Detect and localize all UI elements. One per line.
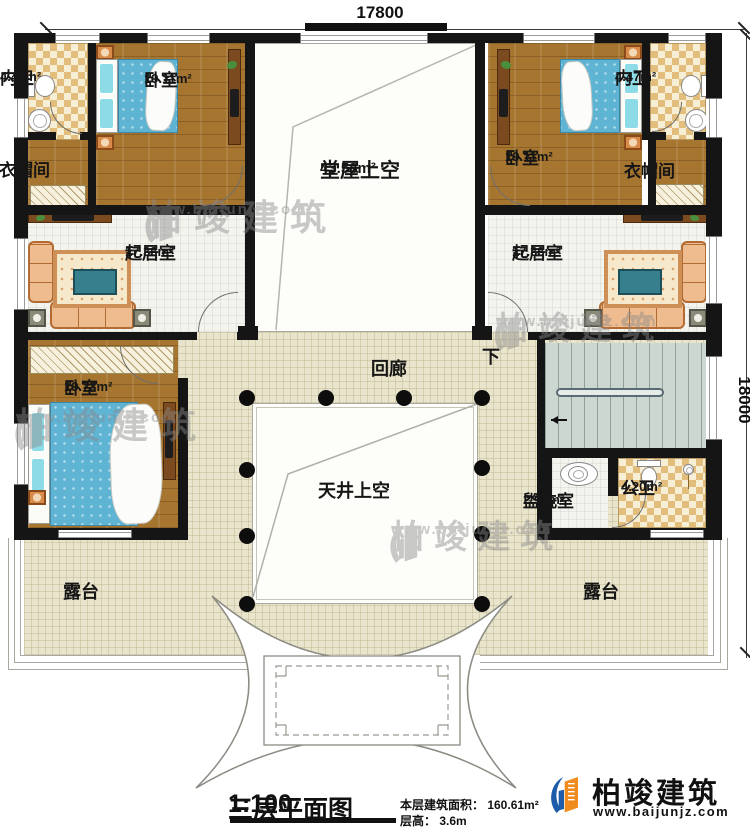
dimension-tick-icon xyxy=(740,647,750,660)
tv-icon xyxy=(230,89,239,117)
wall-segment xyxy=(88,140,96,213)
dimension-width: 17800 xyxy=(340,3,420,23)
floor-height-note: 层高： 3.6m xyxy=(400,812,467,829)
tv-icon xyxy=(52,214,94,221)
column-dot xyxy=(318,390,334,406)
stair-direction-arrow-icon xyxy=(547,416,558,424)
column-dot xyxy=(474,460,490,476)
end-table xyxy=(689,309,707,327)
column-dot xyxy=(396,390,412,406)
wall-segment xyxy=(478,205,722,215)
column-dot xyxy=(474,390,490,406)
wall-segment xyxy=(537,448,722,458)
window xyxy=(706,236,722,304)
plant-icon xyxy=(690,215,699,221)
coffee-table xyxy=(618,269,662,295)
wall-segment xyxy=(178,378,188,528)
dimension-line-thick xyxy=(305,23,447,31)
area-note: 本层建筑面积： 160.61m² xyxy=(400,796,539,813)
nightstand-icon xyxy=(96,135,114,150)
stair-handrail xyxy=(556,388,664,397)
shower-cord xyxy=(688,475,689,489)
window xyxy=(668,33,706,43)
gate-roof xyxy=(170,588,530,800)
wall-segment xyxy=(475,43,485,332)
dimension-height: 18000 xyxy=(734,360,750,440)
wall-segment xyxy=(14,332,197,340)
pillow-icon xyxy=(99,63,114,94)
column-dot xyxy=(474,596,490,612)
sofa xyxy=(681,241,707,303)
company-logo-icon xyxy=(546,770,586,820)
dimension-line xyxy=(746,33,747,658)
hall-roofline xyxy=(252,43,478,332)
sink-icon xyxy=(28,109,51,132)
wall-segment xyxy=(80,132,96,140)
window xyxy=(14,238,28,310)
nightstand-icon xyxy=(28,490,46,505)
company-logo: 柏竣建筑 www.baijunjz.com xyxy=(546,768,746,828)
window xyxy=(706,356,722,440)
toilet-icon xyxy=(681,75,701,97)
sink-icon xyxy=(685,109,708,132)
end-table xyxy=(28,309,46,327)
column-dot xyxy=(239,596,255,612)
wall-segment xyxy=(650,132,666,140)
wall-segment xyxy=(245,43,255,332)
window xyxy=(14,98,28,138)
nightstand-icon xyxy=(96,45,114,60)
column-dot xyxy=(239,462,255,478)
closet-right-wardrobe xyxy=(652,184,704,206)
wall-segment xyxy=(608,458,618,496)
title-underline xyxy=(230,818,396,823)
window xyxy=(706,98,722,138)
sink-bowl-icon xyxy=(568,466,588,482)
column-dot xyxy=(239,528,255,544)
window xyxy=(650,530,704,538)
window xyxy=(55,33,100,43)
window xyxy=(58,530,132,538)
company-website: www.baijunjz.com xyxy=(593,804,729,819)
pillow-icon xyxy=(99,98,114,129)
window xyxy=(523,33,595,43)
nightstand-icon xyxy=(624,45,642,60)
wall-segment xyxy=(537,340,545,448)
pillow-icon xyxy=(624,98,639,129)
wall-segment xyxy=(88,33,96,140)
end-table xyxy=(133,309,151,327)
sofa xyxy=(28,241,54,303)
shower-icon xyxy=(683,464,694,475)
courtyard-roofline xyxy=(252,403,478,604)
wall-segment xyxy=(238,326,258,340)
tv-icon xyxy=(499,89,508,117)
tv-icon xyxy=(641,214,683,221)
column-dot xyxy=(239,390,255,406)
plant-icon xyxy=(501,61,511,69)
carpet xyxy=(53,250,131,308)
staircase xyxy=(545,343,706,448)
window xyxy=(147,33,210,43)
window xyxy=(300,33,428,43)
floor-plan-canvas: 内卫4.47m² 卧室19.11m² 衣帽间 堂屋上空43.58m² 卧室19.… xyxy=(0,0,750,833)
nightstand-icon xyxy=(624,135,642,150)
coffee-table xyxy=(73,269,117,295)
carpet xyxy=(604,250,682,308)
toilet-icon xyxy=(637,460,661,467)
